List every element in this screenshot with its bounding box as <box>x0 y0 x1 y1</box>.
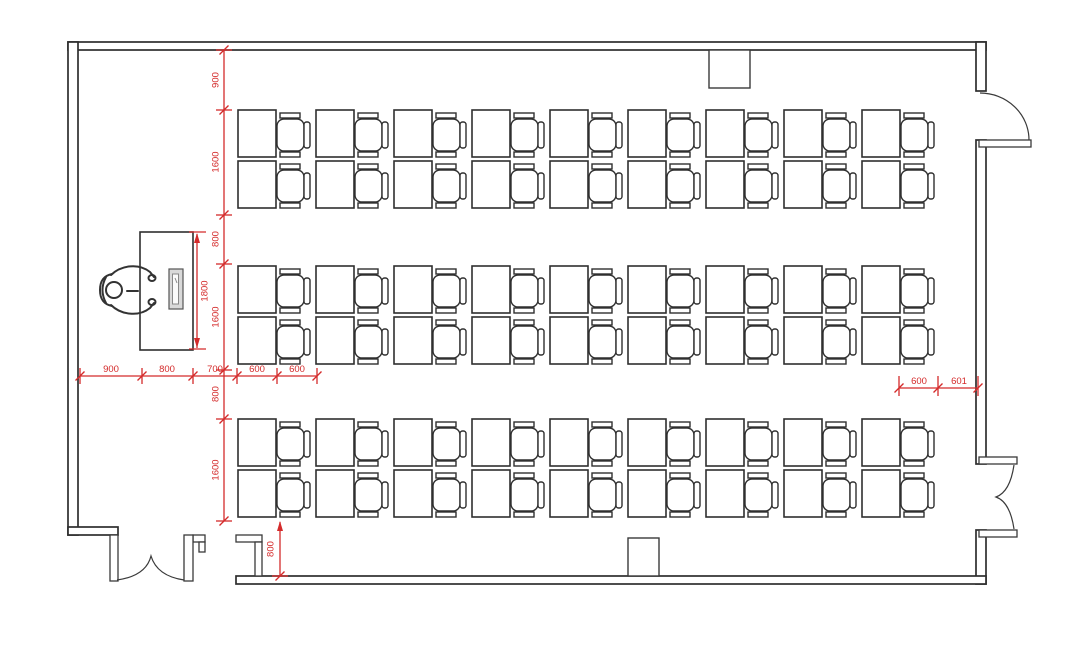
desk-chair-unit <box>316 161 388 208</box>
student-desk <box>706 161 744 208</box>
entry-jamb-l-horizontal <box>236 535 262 542</box>
chair-seat <box>823 275 850 307</box>
chair-armrest-top <box>280 269 300 274</box>
chair-armrest-top <box>826 473 846 478</box>
chair-seat <box>901 479 928 511</box>
desk-chair-unit <box>394 161 466 208</box>
chair-armrest-top <box>514 473 534 478</box>
desk-chair-unit <box>238 419 310 466</box>
chair-armrest-top <box>670 473 690 478</box>
chair-armrest-bottom <box>592 203 612 208</box>
desk-chair-unit <box>784 161 856 208</box>
wall-segment-bottom-left <box>68 527 118 535</box>
chair-backrest <box>616 122 622 148</box>
chair-seat <box>667 479 694 511</box>
chair-backrest <box>538 278 544 304</box>
desk-chair-unit <box>472 110 544 157</box>
chair-armrest-bottom <box>592 461 612 466</box>
chair-armrest-top <box>592 269 612 274</box>
student-desk <box>394 419 432 466</box>
student-desk <box>550 110 588 157</box>
chair-armrest-bottom <box>514 203 534 208</box>
chair-armrest-bottom <box>358 512 378 517</box>
chair-armrest-top <box>280 422 300 427</box>
chair-armrest-top <box>280 473 300 478</box>
chair-backrest <box>304 122 310 148</box>
chair-backrest <box>928 431 934 457</box>
dimension-label: 800 <box>159 364 175 375</box>
student-desk <box>238 266 276 313</box>
chair-armrest-top <box>514 164 534 169</box>
chair-armrest-bottom <box>280 203 300 208</box>
chair-armrest-bottom <box>748 308 768 313</box>
chair-armrest-bottom <box>436 359 456 364</box>
chair-backrest <box>538 431 544 457</box>
wall-segment-top <box>68 42 986 50</box>
chair-backrest <box>772 482 778 508</box>
chair-backrest <box>694 173 700 199</box>
chair-backrest <box>538 329 544 355</box>
chair-armrest-top <box>514 422 534 427</box>
student-desk <box>628 470 666 517</box>
chair-seat <box>433 170 460 202</box>
dimension-entry: 800 <box>266 521 288 581</box>
chair-backrest <box>694 278 700 304</box>
floor-plan-page: 1800 800 900 1600 800 1600 800 1600 900 … <box>0 0 1080 650</box>
entry-jamb-notch-h <box>193 535 205 542</box>
chair-backrest <box>616 329 622 355</box>
chair-backrest <box>304 278 310 304</box>
chair-armrest-top <box>436 113 456 118</box>
chair-seat <box>277 428 304 460</box>
desk-chair-unit <box>784 317 856 364</box>
chair-backrest <box>694 431 700 457</box>
chair-seat <box>823 428 850 460</box>
student-desk <box>316 161 354 208</box>
chair-seat <box>745 326 772 358</box>
dimension-arrow <box>194 338 200 348</box>
student-desk <box>784 110 822 157</box>
chair-seat <box>277 326 304 358</box>
desk-chair-unit <box>550 161 622 208</box>
door-leaf-entry-2 <box>184 535 193 581</box>
desk-chair-unit <box>628 419 700 466</box>
chair-backrest <box>772 173 778 199</box>
chair-seat <box>823 119 850 151</box>
chair-backrest <box>616 173 622 199</box>
student-desk <box>784 419 822 466</box>
chair-armrest-top <box>358 164 378 169</box>
chair-backrest <box>538 122 544 148</box>
chair-backrest <box>382 122 388 148</box>
student-desk <box>394 470 432 517</box>
desk-chair-unit <box>706 470 778 517</box>
chair-armrest-top <box>826 269 846 274</box>
desk-chair-unit <box>628 110 700 157</box>
chair-armrest-bottom <box>592 512 612 517</box>
student-desk <box>472 419 510 466</box>
chair-armrest-top <box>358 269 378 274</box>
chair-backrest <box>460 431 466 457</box>
desk-chair-unit <box>628 266 700 313</box>
chair-armrest-top <box>904 320 924 325</box>
dimension-label: 1600 <box>211 151 222 172</box>
chair-seat <box>745 275 772 307</box>
chair-armrest-top <box>826 320 846 325</box>
wall-segment-left <box>68 42 78 535</box>
chair-armrest-top <box>748 320 768 325</box>
chair-seat <box>277 275 304 307</box>
desk-chair-unit <box>472 161 544 208</box>
chair-armrest-bottom <box>748 512 768 517</box>
desk-chair-unit <box>238 110 310 157</box>
chair-armrest-bottom <box>436 512 456 517</box>
chair-backrest <box>304 482 310 508</box>
chair-seat <box>355 428 382 460</box>
door-leaf-bottom-right-2 <box>979 530 1017 537</box>
chair-armrest-bottom <box>904 461 924 466</box>
door-swing-arc-entry <box>117 556 184 580</box>
desk-chair-unit <box>550 470 622 517</box>
dimension-label: 900 <box>211 72 222 88</box>
chair-armrest-top <box>748 422 768 427</box>
chair-armrest-bottom <box>280 512 300 517</box>
chair-backrest <box>694 482 700 508</box>
chair-backrest <box>382 278 388 304</box>
chair-backrest <box>850 278 856 304</box>
chair-armrest-top <box>280 113 300 118</box>
chair-seat <box>355 479 382 511</box>
chair-armrest-bottom <box>592 308 612 313</box>
dimension-label: 1600 <box>211 306 222 327</box>
chair-armrest-bottom <box>592 152 612 157</box>
teacher-desk <box>140 232 193 350</box>
student-desk <box>394 317 432 364</box>
chair-armrest-top <box>748 473 768 478</box>
chair-backrest <box>850 431 856 457</box>
dimension-label: 800 <box>211 386 222 402</box>
door-swing-arc-bottom-right <box>996 465 1014 529</box>
chair-armrest-top <box>748 164 768 169</box>
chair-armrest-top <box>592 320 612 325</box>
dimension-arrow <box>277 521 283 531</box>
student-desk <box>472 470 510 517</box>
desk-chair-unit <box>238 161 310 208</box>
desk-chair-unit <box>784 419 856 466</box>
chair-seat <box>745 428 772 460</box>
chair-armrest-bottom <box>514 359 534 364</box>
chair-armrest-top <box>904 113 924 118</box>
chair-armrest-bottom <box>514 308 534 313</box>
desk-chair-unit <box>706 110 778 157</box>
student-desk <box>706 317 744 364</box>
chair-armrest-bottom <box>670 359 690 364</box>
chair-seat <box>589 326 616 358</box>
desk-chair-unit <box>394 110 466 157</box>
chair-backrest <box>304 431 310 457</box>
chair-seat <box>433 119 460 151</box>
chair-armrest-bottom <box>514 512 534 517</box>
student-desk <box>628 110 666 157</box>
chair-armrest-top <box>670 164 690 169</box>
chair-armrest-top <box>904 422 924 427</box>
dimension-label: 601 <box>951 376 967 387</box>
chair-backrest <box>772 431 778 457</box>
chair-armrest-bottom <box>748 461 768 466</box>
chair-armrest-top <box>826 164 846 169</box>
chair-seat <box>901 170 928 202</box>
chair-backrest <box>928 329 934 355</box>
student-desk <box>472 110 510 157</box>
chair-seat <box>823 170 850 202</box>
desk-chair-unit <box>472 470 544 517</box>
desk-chair-unit <box>394 266 466 313</box>
chair-armrest-bottom <box>904 308 924 313</box>
chair-seat <box>667 275 694 307</box>
chair-seat <box>355 275 382 307</box>
entry-jamb-l-vertical <box>255 542 262 576</box>
chair-backrest <box>850 173 856 199</box>
wall-segment-bottom <box>236 576 986 584</box>
chair-backrest <box>694 122 700 148</box>
chair-armrest-top <box>670 113 690 118</box>
chair-seat <box>745 119 772 151</box>
chair-armrest-bottom <box>748 203 768 208</box>
student-desk <box>238 419 276 466</box>
chair-armrest-bottom <box>826 359 846 364</box>
chair-armrest-bottom <box>904 152 924 157</box>
desk-chair-unit <box>316 266 388 313</box>
chair-armrest-top <box>358 113 378 118</box>
dimension-label: 600 <box>249 364 265 375</box>
dimension-label: 1800 <box>200 280 211 301</box>
student-desk <box>472 266 510 313</box>
student-desk <box>238 470 276 517</box>
student-desk <box>472 317 510 364</box>
chair-seat <box>589 275 616 307</box>
student-desk <box>394 266 432 313</box>
dimension-arrow <box>194 233 200 243</box>
chair-seat <box>511 326 538 358</box>
student-desk <box>628 317 666 364</box>
chair-armrest-bottom <box>514 152 534 157</box>
desk-chair-unit <box>628 161 700 208</box>
chair-seat <box>745 170 772 202</box>
dimension-label: 600 <box>911 376 927 387</box>
chair-armrest-top <box>592 113 612 118</box>
chair-armrest-top <box>592 473 612 478</box>
dimension-label: 800 <box>211 231 222 247</box>
chair-seat <box>589 479 616 511</box>
student-desk <box>784 470 822 517</box>
teacher-area <box>100 232 193 350</box>
chair-seat <box>511 479 538 511</box>
chair-seat <box>511 275 538 307</box>
chair-armrest-top <box>514 269 534 274</box>
student-desk <box>472 161 510 208</box>
chair-armrest-bottom <box>904 512 924 517</box>
chair-seat <box>433 326 460 358</box>
chair-armrest-bottom <box>670 308 690 313</box>
chair-backrest <box>538 173 544 199</box>
desk-chair-unit <box>784 470 856 517</box>
chair-backrest <box>382 482 388 508</box>
desk-chair-unit <box>316 470 388 517</box>
chair-armrest-top <box>670 320 690 325</box>
dimension-label: 800 <box>266 541 277 557</box>
student-desk <box>862 161 900 208</box>
chair-backrest <box>772 278 778 304</box>
desk-chair-unit <box>862 110 934 157</box>
desk-chair-unit <box>394 419 466 466</box>
desk-chair-unit <box>550 110 622 157</box>
chair-backrest <box>850 329 856 355</box>
desk-chair-unit <box>316 110 388 157</box>
chair-armrest-top <box>748 113 768 118</box>
chair-armrest-bottom <box>280 461 300 466</box>
desk-chair-unit <box>706 161 778 208</box>
chair-seat <box>589 119 616 151</box>
chair-armrest-bottom <box>826 512 846 517</box>
chair-armrest-bottom <box>826 203 846 208</box>
chair-armrest-top <box>358 320 378 325</box>
chair-armrest-bottom <box>904 359 924 364</box>
chair-seat <box>355 170 382 202</box>
chair-backrest <box>460 278 466 304</box>
laptop-on-desk <box>169 269 183 309</box>
student-desk <box>862 470 900 517</box>
student-desk <box>238 161 276 208</box>
dimension-label: 1600 <box>211 459 222 480</box>
chair-backrest <box>928 278 934 304</box>
desk-chair-unit <box>238 266 310 313</box>
chair-seat <box>667 170 694 202</box>
student-desk <box>316 470 354 517</box>
student-desk <box>784 317 822 364</box>
desk-chair-unit <box>394 470 466 517</box>
chair-armrest-bottom <box>358 152 378 157</box>
chair-armrest-top <box>436 473 456 478</box>
chair-seat <box>901 326 928 358</box>
wall-segment-right-upper <box>976 42 986 91</box>
desk-chair-unit <box>472 266 544 313</box>
desk-chair-unit <box>238 470 310 517</box>
desk-chair-unit <box>550 266 622 313</box>
chair-armrest-bottom <box>748 152 768 157</box>
chair-seat <box>355 326 382 358</box>
chair-armrest-bottom <box>358 203 378 208</box>
chair-armrest-bottom <box>826 461 846 466</box>
dimension-label: 900 <box>103 364 119 375</box>
chair-seat <box>511 119 538 151</box>
wall-segment-right-middle <box>976 140 986 464</box>
chair-armrest-bottom <box>436 152 456 157</box>
student-desk <box>862 266 900 313</box>
wall-column-bottom <box>628 538 659 576</box>
student-desk <box>628 419 666 466</box>
chair-seat <box>745 479 772 511</box>
chair-seat <box>277 119 304 151</box>
chair-armrest-bottom <box>514 461 534 466</box>
door-leaf-bottom-right-1 <box>979 457 1017 464</box>
chair-seat <box>355 119 382 151</box>
student-desk <box>706 470 744 517</box>
student-desk <box>862 317 900 364</box>
chair-seat <box>823 479 850 511</box>
student-desk <box>394 161 432 208</box>
desk-chair-unit <box>862 161 934 208</box>
chair-backrest <box>538 482 544 508</box>
chair-armrest-top <box>436 422 456 427</box>
chair-backrest <box>460 329 466 355</box>
chair-backrest <box>850 122 856 148</box>
student-desk <box>862 110 900 157</box>
desk-chair-unit <box>784 266 856 313</box>
student-desk <box>550 419 588 466</box>
chair-armrest-top <box>670 422 690 427</box>
desk-chair-unit <box>238 317 310 364</box>
desk-chair-unit <box>706 266 778 313</box>
chair-backrest <box>382 431 388 457</box>
chair-armrest-top <box>904 473 924 478</box>
chair-seat <box>901 428 928 460</box>
chair-armrest-bottom <box>670 512 690 517</box>
desk-chair-unit <box>784 110 856 157</box>
chair-backrest <box>460 173 466 199</box>
student-desk <box>706 110 744 157</box>
chair-backrest <box>304 173 310 199</box>
desk-chair-unit <box>706 419 778 466</box>
chair-backrest <box>928 122 934 148</box>
chair-seat <box>667 428 694 460</box>
desk-chair-unit <box>862 317 934 364</box>
chair-armrest-top <box>904 164 924 169</box>
chair-armrest-top <box>592 422 612 427</box>
chair-armrest-top <box>358 473 378 478</box>
chair-backrest <box>772 329 778 355</box>
student-desk <box>550 470 588 517</box>
entry-jamb-notch-v <box>199 542 205 552</box>
chair-armrest-top <box>826 422 846 427</box>
student-desk <box>706 419 744 466</box>
chair-seat <box>277 170 304 202</box>
desk-chair-unit <box>862 266 934 313</box>
chair-armrest-bottom <box>436 203 456 208</box>
dimension-label: 700 <box>207 364 223 375</box>
chair-backrest <box>382 173 388 199</box>
chair-seat <box>433 428 460 460</box>
student-desk <box>238 110 276 157</box>
chair-armrest-bottom <box>670 152 690 157</box>
wall-column-top <box>709 50 750 88</box>
chair-backrest <box>304 329 310 355</box>
student-desk <box>316 317 354 364</box>
chair-backrest <box>382 329 388 355</box>
student-desk <box>862 419 900 466</box>
chair-seat <box>277 479 304 511</box>
chair-seat <box>823 326 850 358</box>
desk-chair-unit <box>706 317 778 364</box>
chair-armrest-bottom <box>826 308 846 313</box>
desk-chair-unit <box>316 317 388 364</box>
chair-backrest <box>616 482 622 508</box>
chair-backrest <box>460 122 466 148</box>
student-desk <box>316 419 354 466</box>
student-desk <box>394 110 432 157</box>
chair-armrest-bottom <box>436 308 456 313</box>
student-desk <box>628 161 666 208</box>
chair-armrest-top <box>436 320 456 325</box>
